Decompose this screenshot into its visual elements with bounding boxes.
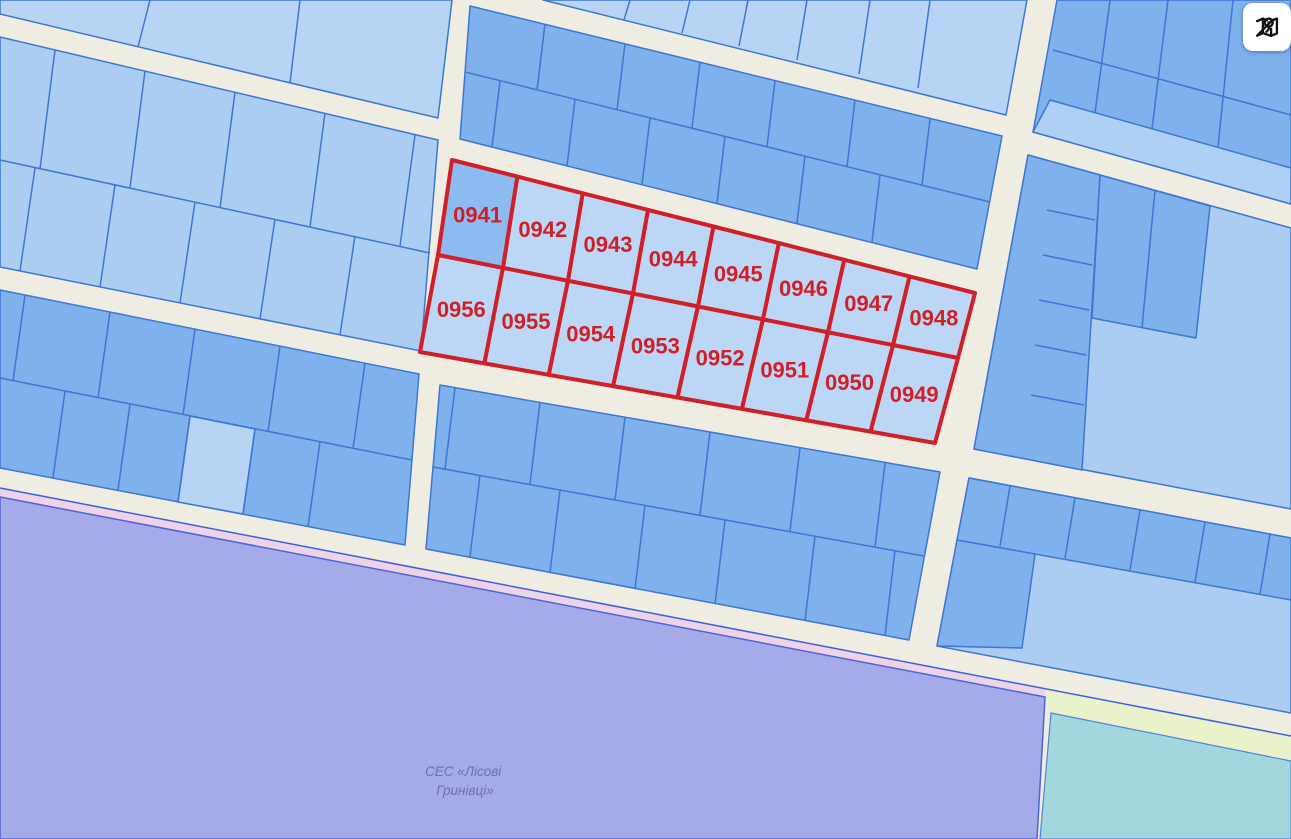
parcel-label-0945: 0945: [714, 261, 763, 286]
map-layers-button[interactable]: [1243, 3, 1291, 51]
parcel-label-0941: 0941: [453, 202, 502, 227]
parcel-label-0946: 0946: [779, 276, 828, 301]
parcel-label-0942: 0942: [518, 217, 567, 242]
parcel-label-0952: 0952: [696, 346, 745, 371]
parcel-label-0951: 0951: [760, 358, 809, 383]
parcel-label-0956: 0956: [437, 297, 486, 322]
map-viewport[interactable]: СЕС «Лісові Гринівці» 094109420943094409…: [0, 0, 1291, 839]
parcel-label-0948: 0948: [909, 306, 958, 331]
parcel-label-0954: 0954: [566, 321, 616, 346]
parcel-label-0955: 0955: [502, 309, 551, 334]
cadastral-map-canvas[interactable]: СЕС «Лісові Гринівці» 094109420943094409…: [0, 0, 1291, 839]
parcel-label-0944: 0944: [649, 247, 699, 272]
map-with-pin-icon: [1253, 13, 1281, 41]
parcel-label-0943: 0943: [584, 232, 633, 257]
parcel-label-0949: 0949: [890, 382, 939, 407]
parcel-label-0947: 0947: [844, 291, 893, 316]
parcel-label-0950: 0950: [825, 370, 874, 395]
parcel-label-0953: 0953: [631, 333, 680, 358]
